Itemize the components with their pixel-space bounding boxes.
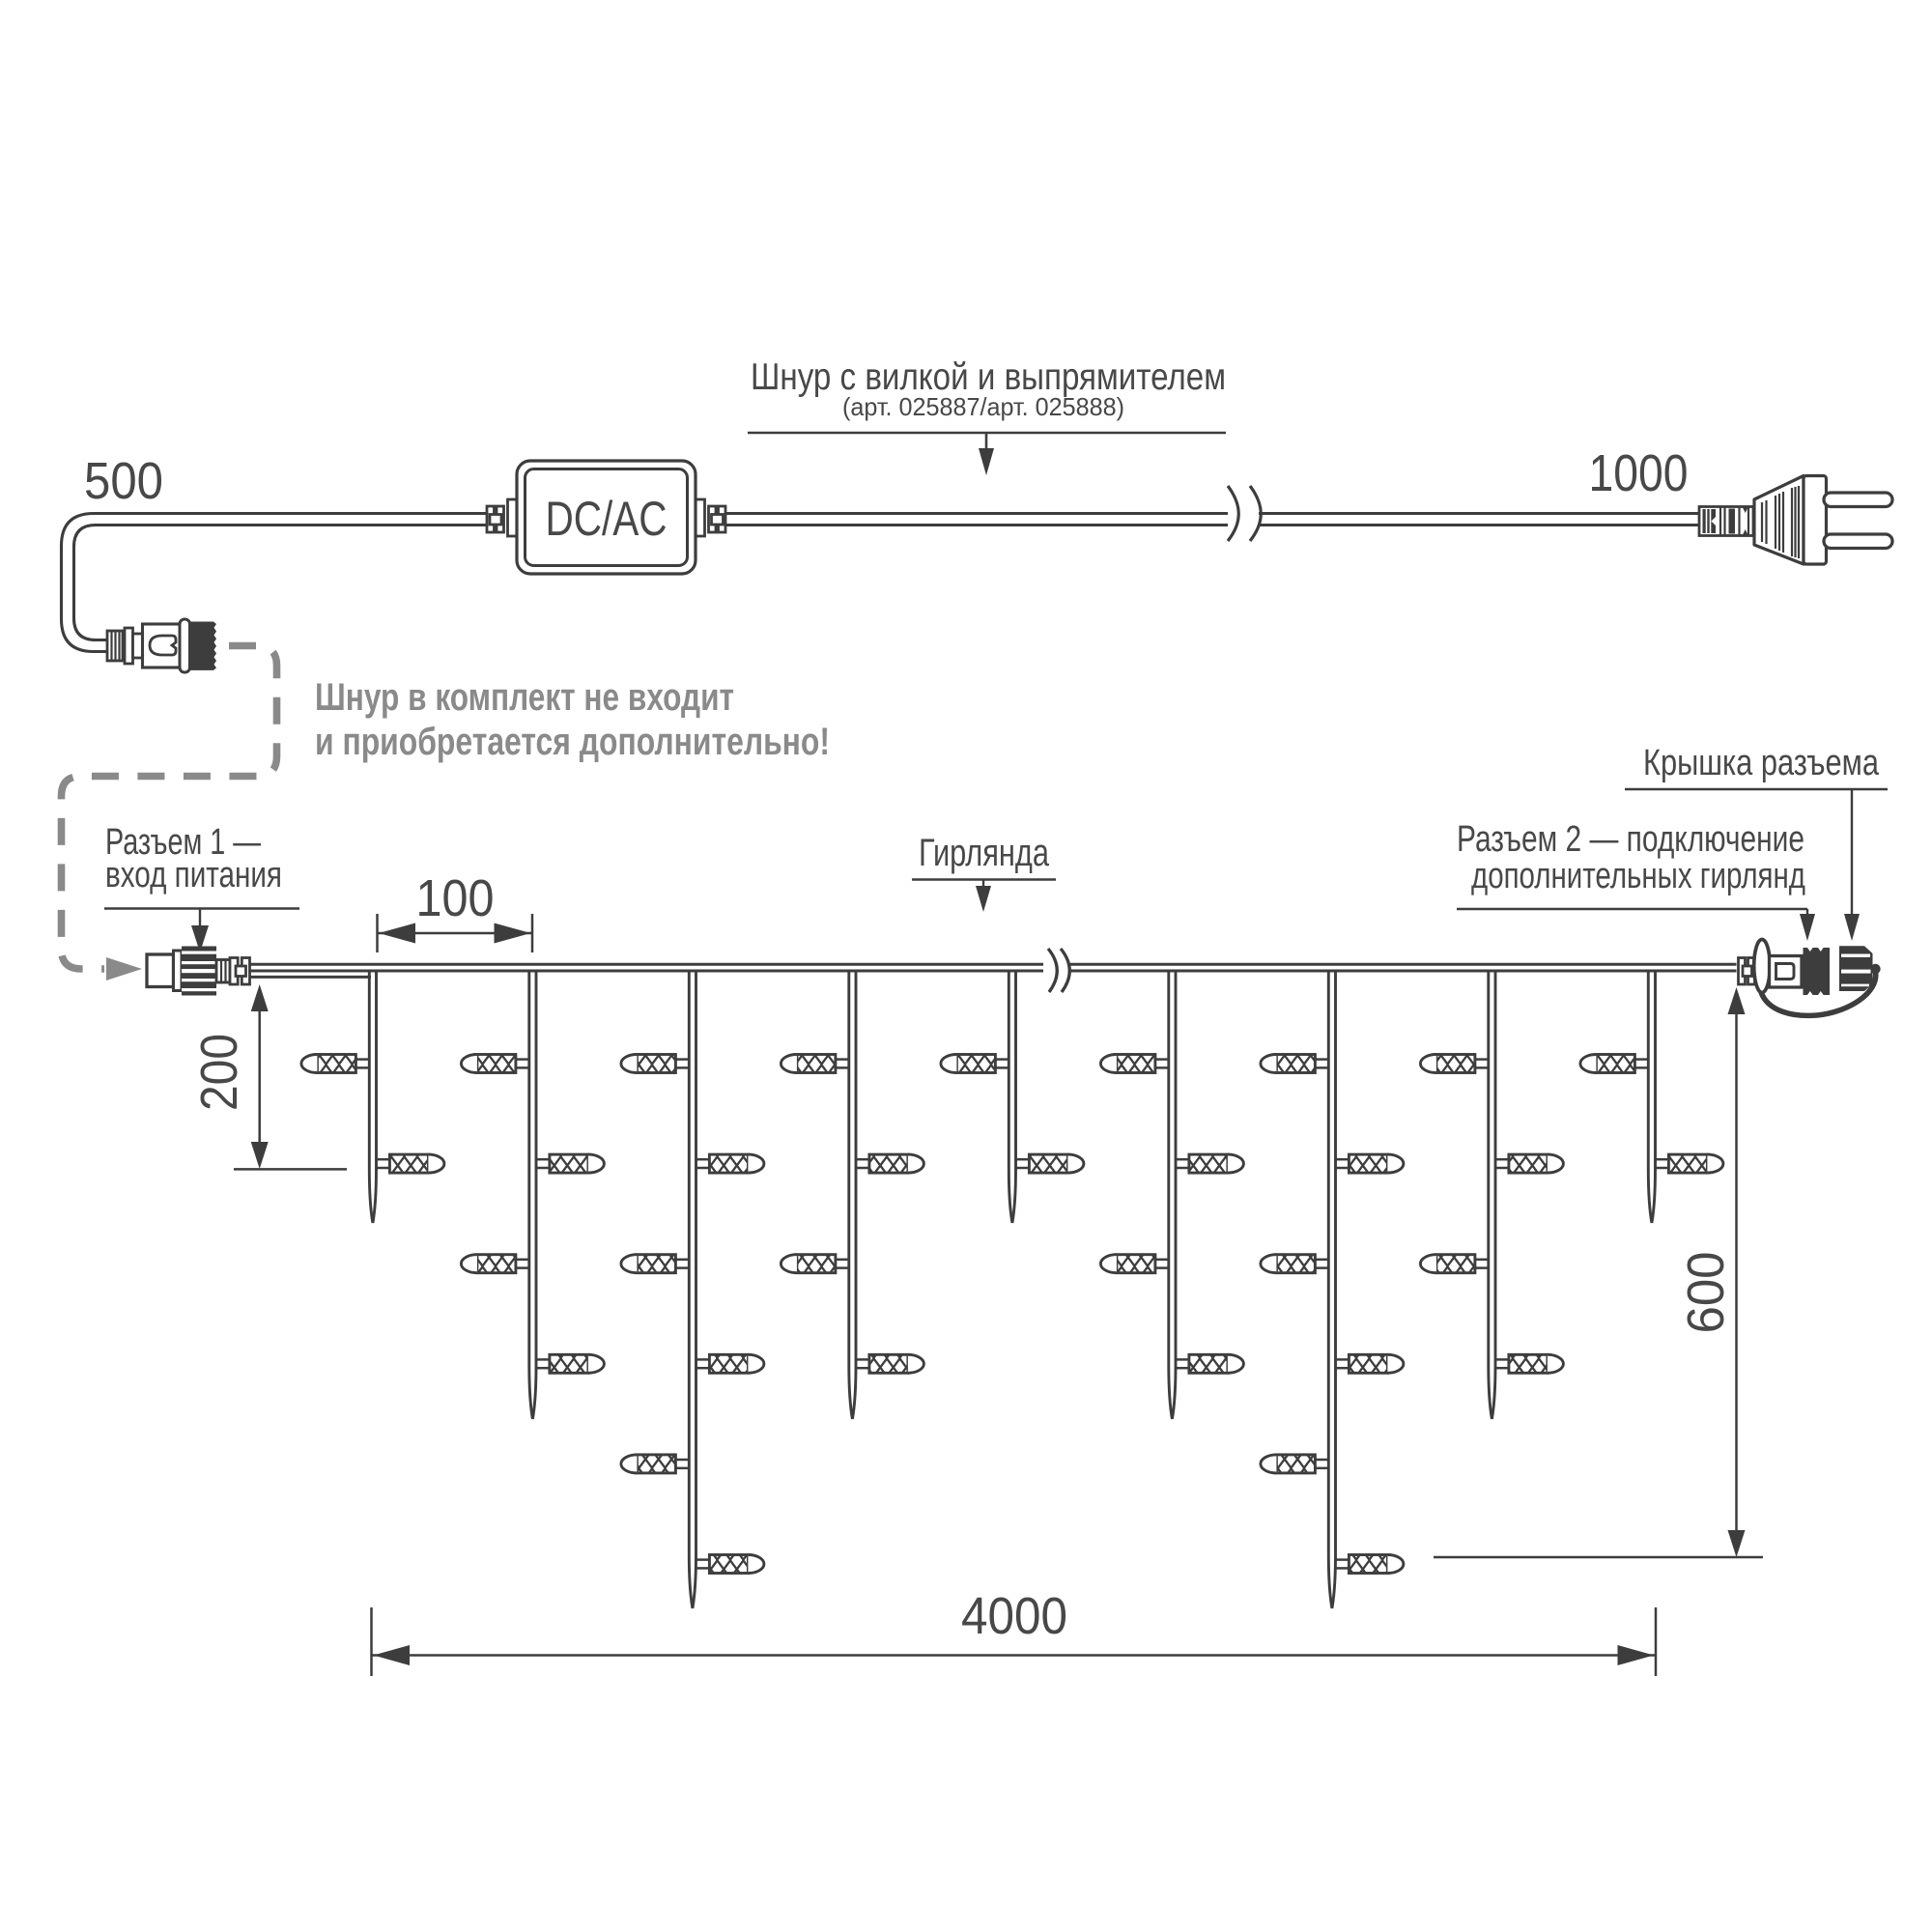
svg-text:1000: 1000 (1589, 444, 1689, 502)
svg-text:и приобретается дополнительно!: и приобретается дополнительно! (315, 721, 830, 763)
svg-text:Разъем 2 — подключение: Разъем 2 — подключение (1457, 819, 1804, 860)
svg-text:100: 100 (416, 869, 495, 927)
svg-text:600: 600 (1677, 1252, 1735, 1334)
svg-text:Гирлянда: Гирлянда (919, 832, 1050, 874)
svg-text:дополнительных гирлянд: дополнительных гирлянд (1471, 856, 1805, 896)
svg-text:DC/AC: DC/AC (546, 492, 668, 546)
svg-text:(арт. 025887/арт. 025888): (арт. 025887/арт. 025888) (842, 392, 1124, 421)
svg-text:200: 200 (190, 1034, 248, 1111)
svg-text:500: 500 (84, 452, 163, 510)
svg-text:Крышка разъема: Крышка разъема (1643, 743, 1880, 783)
svg-text:вход питания: вход питания (105, 855, 282, 895)
svg-text:Шнур в комплект не входит: Шнур в комплект не входит (315, 676, 734, 719)
svg-text:4000: 4000 (961, 1587, 1067, 1645)
